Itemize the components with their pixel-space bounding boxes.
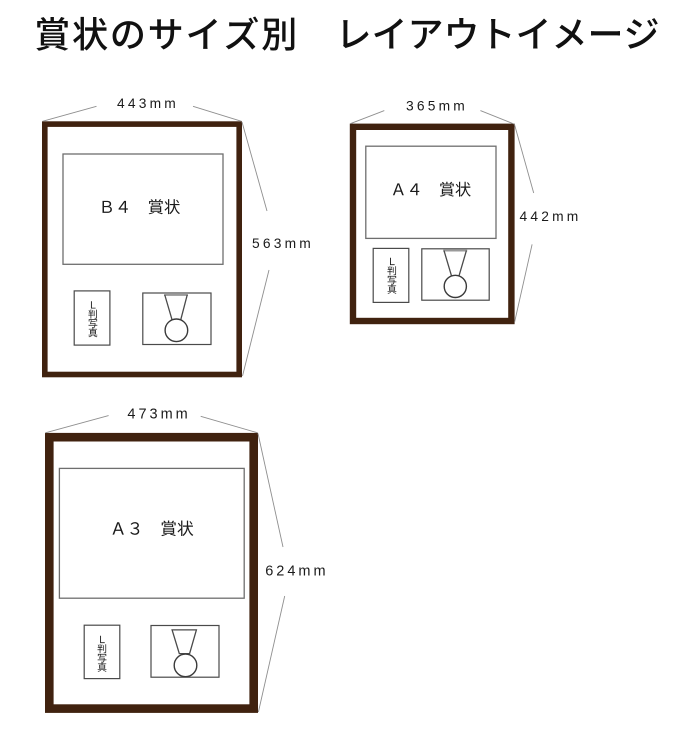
svg-text:442mm: 442mm	[520, 209, 582, 224]
svg-text:563mm: 563mm	[252, 236, 314, 251]
svg-text:473mm: 473mm	[127, 407, 190, 423]
svg-text:365mm: 365mm	[406, 99, 468, 114]
svg-text:443mm: 443mm	[117, 96, 179, 111]
svg-text:624mm: 624mm	[265, 563, 328, 579]
